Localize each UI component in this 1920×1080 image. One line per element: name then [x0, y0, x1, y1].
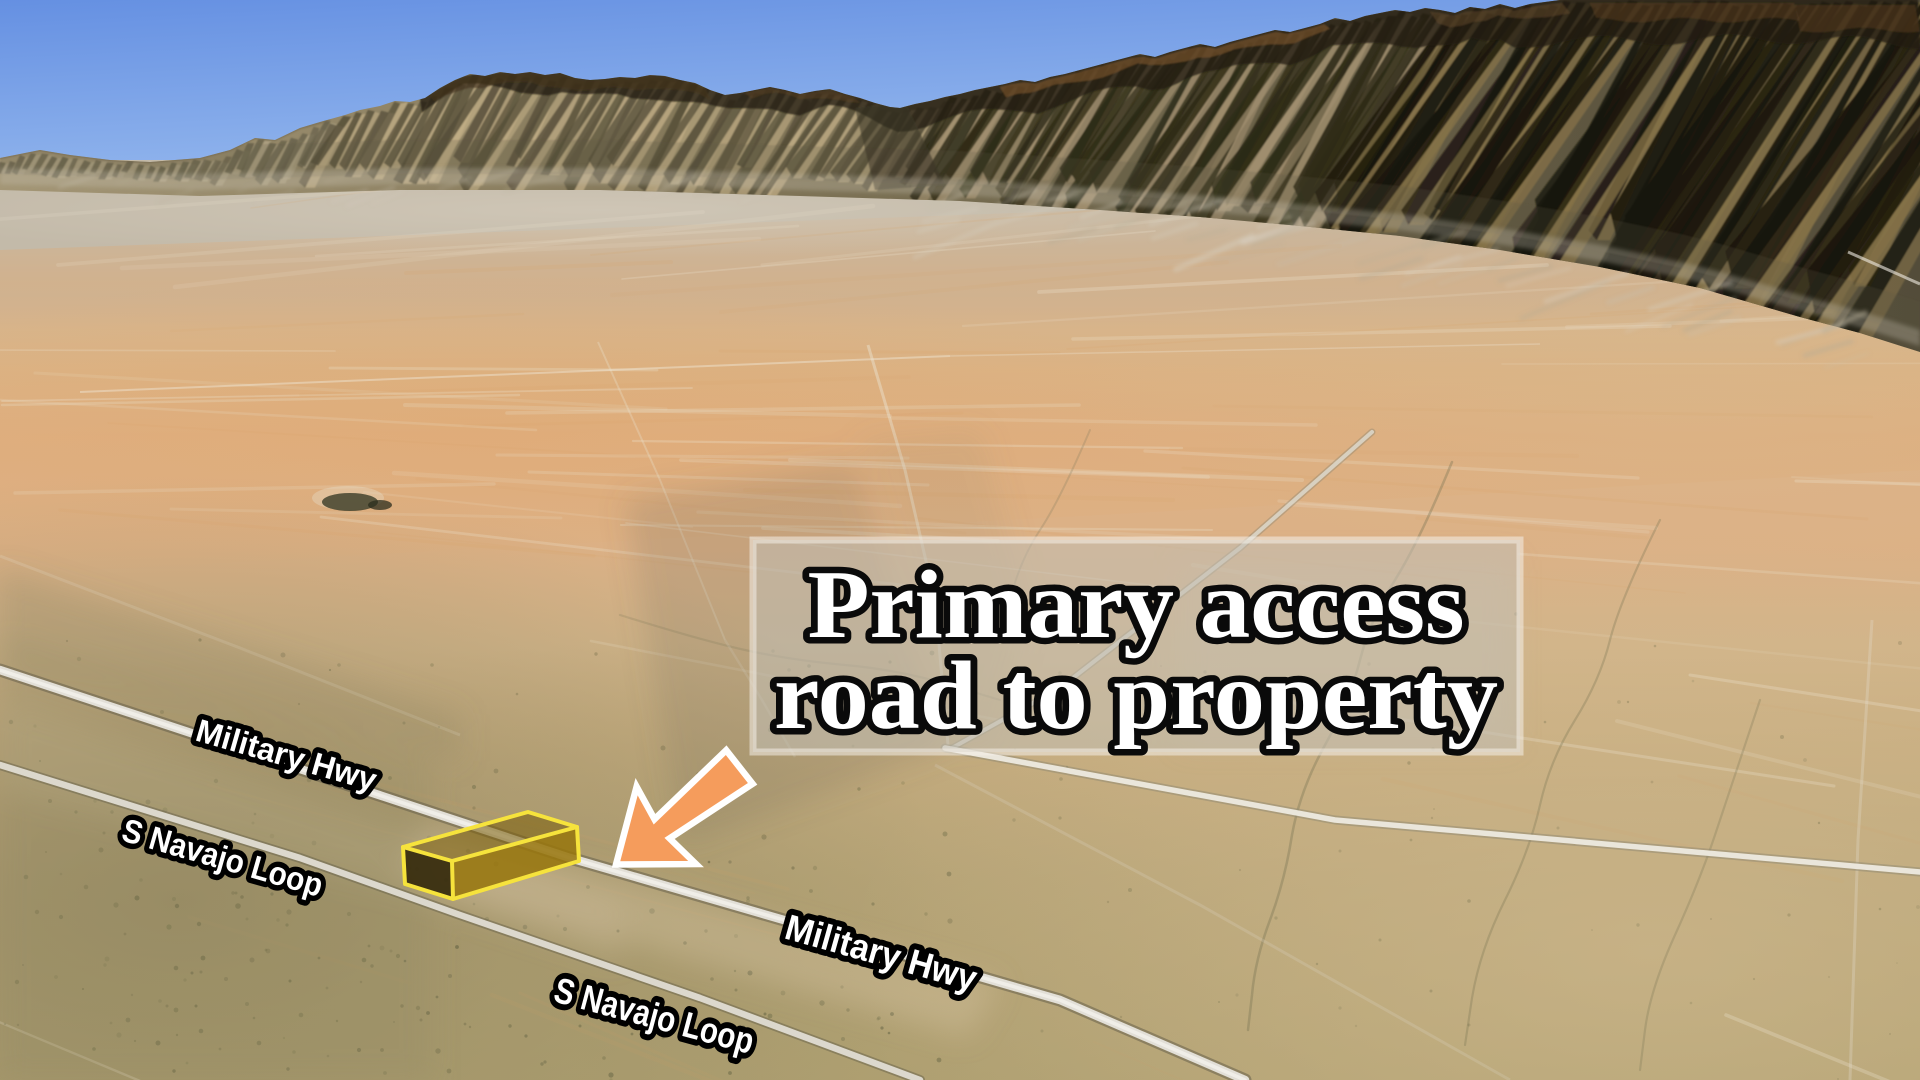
- svg-text:road to property: road to property: [774, 642, 1498, 749]
